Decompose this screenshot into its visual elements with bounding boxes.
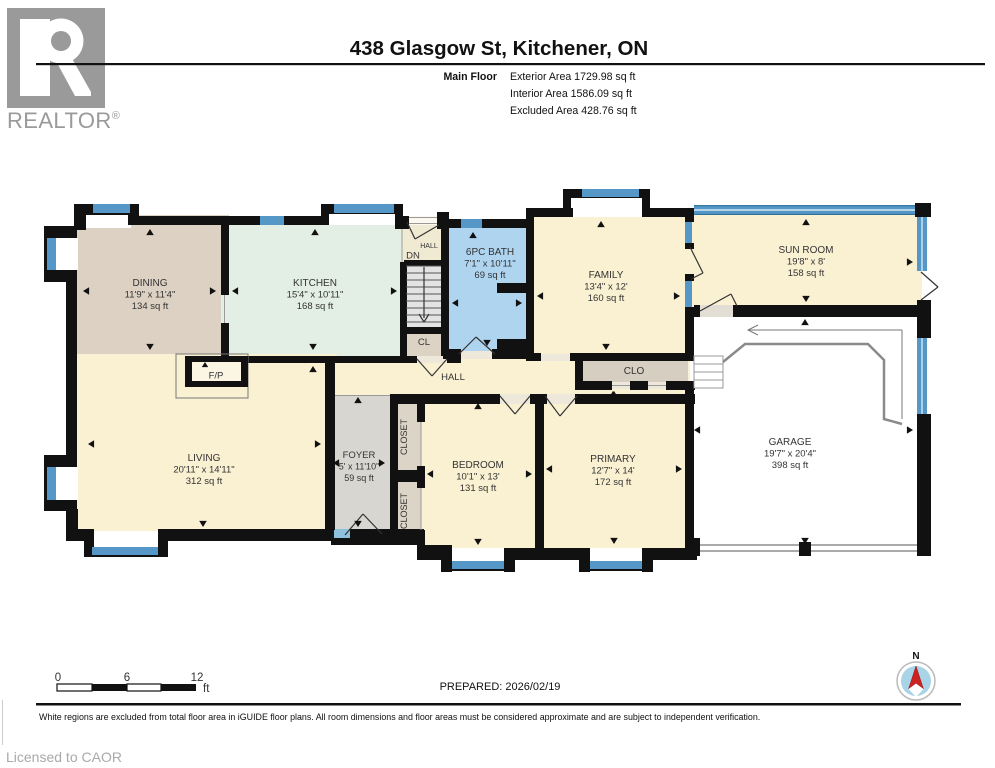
- svg-text:168 sq ft: 168 sq ft: [297, 301, 334, 312]
- svg-text:LIVING: LIVING: [188, 453, 221, 464]
- svg-text:158 sq ft: 158 sq ft: [788, 268, 825, 279]
- svg-text:20'11" x 14'11": 20'11" x 14'11": [173, 465, 234, 476]
- svg-text:SUN ROOM: SUN ROOM: [779, 245, 834, 256]
- svg-text:312 sq ft: 312 sq ft: [186, 476, 223, 487]
- svg-text:Exterior Area 1729.98 sq ft: Exterior Area 1729.98 sq ft: [510, 71, 635, 83]
- svg-text:DN: DN: [406, 251, 420, 262]
- svg-text:HALL: HALL: [420, 243, 438, 250]
- svg-text:134 sq ft: 134 sq ft: [132, 301, 169, 312]
- svg-text:Licensed to CAOR: Licensed to CAOR: [6, 749, 122, 765]
- svg-text:CLOSET: CLOSET: [399, 418, 409, 455]
- svg-text:0: 0: [55, 672, 61, 684]
- svg-text:FOYER: FOYER: [343, 450, 376, 461]
- svg-text:FAMILY: FAMILY: [589, 270, 624, 281]
- svg-text:69 sq ft: 69 sq ft: [474, 270, 506, 281]
- svg-text:6PC BATH: 6PC BATH: [466, 247, 514, 258]
- svg-text:Excluded Area 428.76 sq ft: Excluded Area 428.76 sq ft: [510, 105, 637, 117]
- svg-text:PREPARED: 2026/02/19: PREPARED: 2026/02/19: [440, 681, 561, 693]
- svg-text:131 sq ft: 131 sq ft: [460, 483, 497, 494]
- svg-text:7'1" x 10'11": 7'1" x 10'11": [464, 259, 515, 270]
- svg-text:6: 6: [124, 672, 130, 684]
- svg-text:438 Glasgow St, Kitchener, ON: 438 Glasgow St, Kitchener, ON: [350, 37, 648, 60]
- svg-text:PRIMARY: PRIMARY: [590, 454, 636, 465]
- svg-text:Main Floor: Main Floor: [443, 71, 497, 83]
- svg-text:White regions are excluded fro: White regions are excluded from total fl…: [39, 712, 760, 722]
- svg-text:REALTOR®: REALTOR®: [7, 108, 120, 133]
- svg-text:GARAGE: GARAGE: [769, 437, 812, 448]
- svg-text:11'9" x 11'4": 11'9" x 11'4": [125, 290, 176, 301]
- svg-text:12: 12: [191, 672, 204, 684]
- svg-text:DINING: DINING: [133, 278, 168, 289]
- svg-text:ft: ft: [203, 683, 210, 695]
- svg-text:172 sq ft: 172 sq ft: [595, 477, 632, 488]
- svg-text:CLO: CLO: [624, 366, 645, 377]
- svg-text:19'8" x 8': 19'8" x 8': [787, 257, 825, 268]
- svg-text:N: N: [912, 651, 919, 662]
- svg-text:10'1" x 13': 10'1" x 13': [456, 472, 500, 483]
- svg-text:CL: CL: [418, 337, 430, 348]
- svg-text:BEDROOM: BEDROOM: [452, 460, 504, 471]
- svg-text:59 sq ft: 59 sq ft: [344, 473, 374, 483]
- svg-text:Interior Area 1586.09 sq ft: Interior Area 1586.09 sq ft: [510, 88, 632, 100]
- svg-text:19'7" x 20'4": 19'7" x 20'4": [764, 449, 816, 460]
- svg-text:KITCHEN: KITCHEN: [293, 278, 337, 289]
- svg-text:F/P: F/P: [209, 371, 224, 382]
- svg-text:CLOSET: CLOSET: [399, 492, 409, 529]
- svg-text:160 sq ft: 160 sq ft: [588, 293, 625, 304]
- svg-text:13'4" x 12': 13'4" x 12': [584, 282, 628, 293]
- svg-text:5' x 11'10": 5' x 11'10": [339, 462, 380, 472]
- svg-text:12'7" x 14': 12'7" x 14': [591, 466, 635, 477]
- svg-text:398 sq ft: 398 sq ft: [772, 460, 809, 471]
- svg-text:HALL: HALL: [441, 372, 465, 383]
- svg-text:15'4" x 10'11": 15'4" x 10'11": [287, 290, 344, 301]
